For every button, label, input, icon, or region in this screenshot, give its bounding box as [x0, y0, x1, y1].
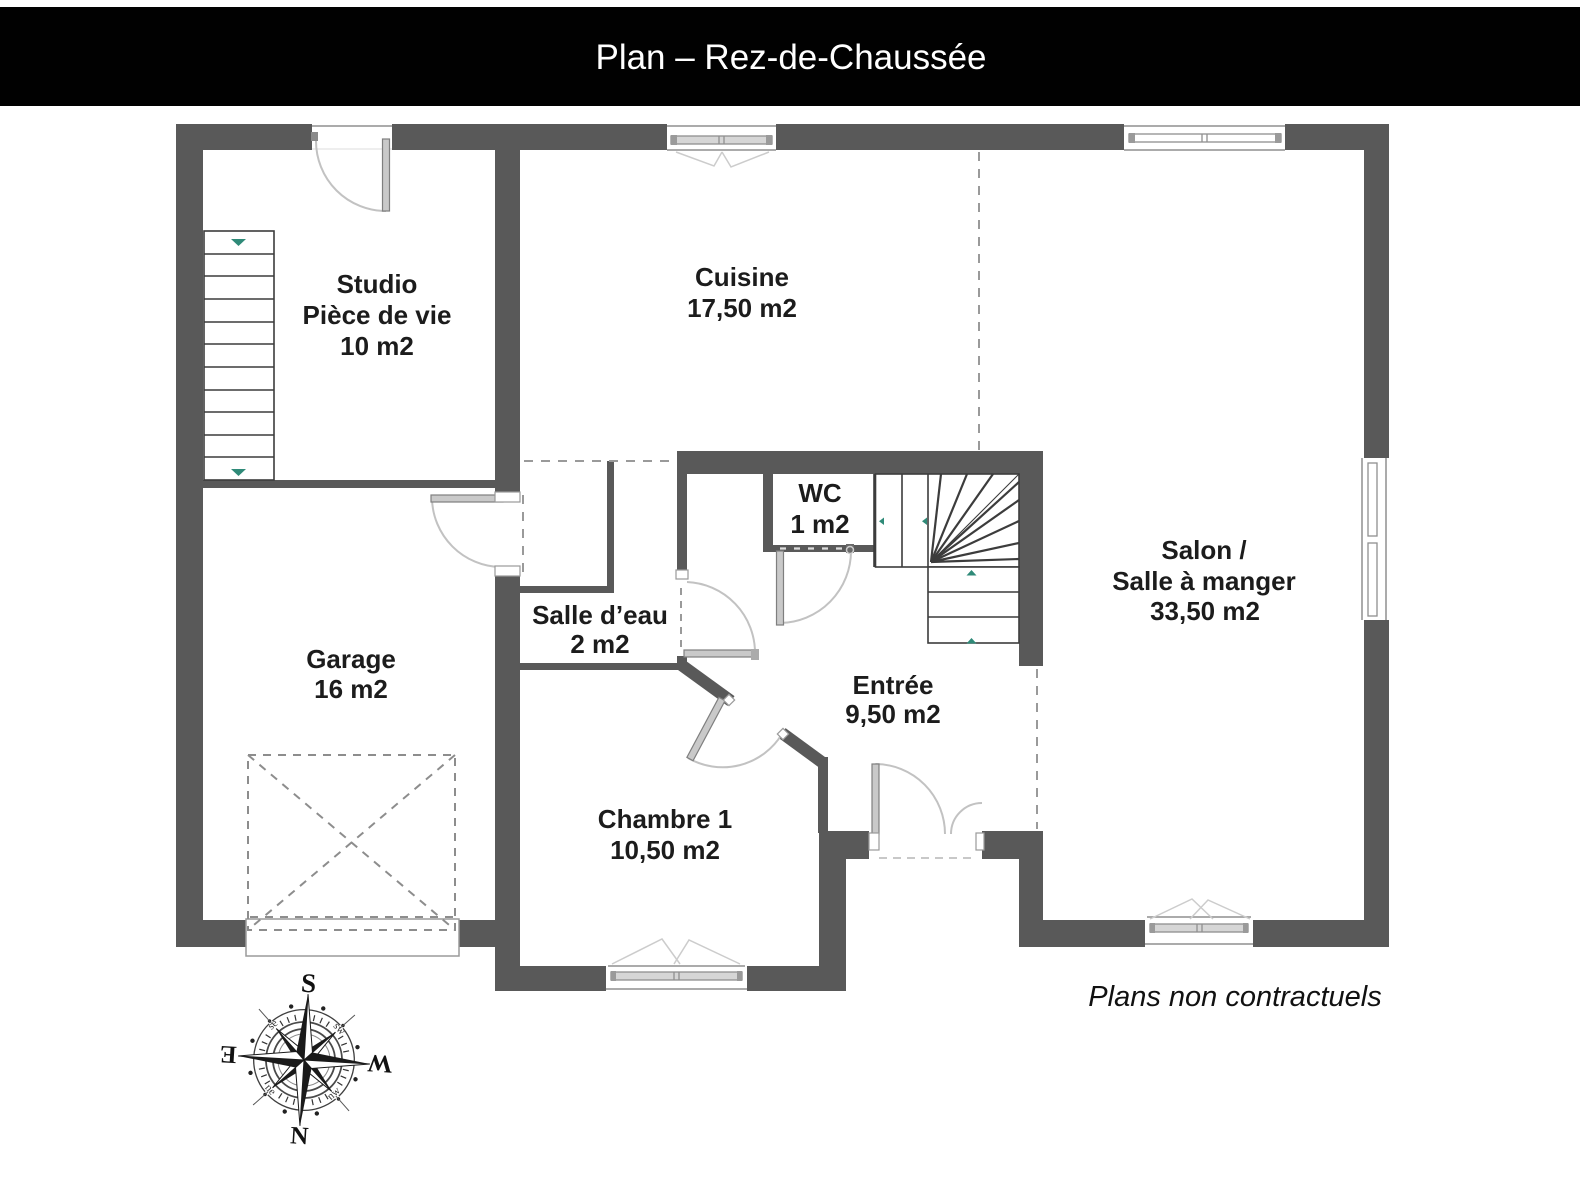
- svg-text:16 m2: 16 m2: [314, 674, 388, 704]
- svg-text:S: S: [300, 968, 317, 999]
- svg-text:Plan – Rez-de-Chaussée: Plan – Rez-de-Chaussée: [595, 38, 986, 77]
- svg-text:17,50 m2: 17,50 m2: [687, 293, 797, 323]
- svg-text:Salon /: Salon /: [1161, 535, 1246, 565]
- svg-text:Studio: Studio: [337, 269, 418, 299]
- svg-text:Entrée: Entrée: [853, 670, 934, 700]
- svg-text:1 m2: 1 m2: [790, 509, 849, 539]
- svg-text:Plans non contractuels: Plans non contractuels: [1088, 981, 1381, 1013]
- svg-text:Cuisine: Cuisine: [695, 262, 789, 292]
- svg-text:10,50 m2: 10,50 m2: [610, 835, 720, 865]
- svg-text:W: W: [367, 1049, 394, 1077]
- svg-text:Salle à manger: Salle à manger: [1112, 566, 1296, 596]
- svg-text:Pièce de vie: Pièce de vie: [303, 300, 452, 330]
- svg-text:Chambre 1: Chambre 1: [598, 804, 732, 834]
- svg-text:Salle d’eau: Salle d’eau: [532, 600, 668, 630]
- svg-text:Garage: Garage: [306, 644, 396, 674]
- svg-text:N: N: [289, 1122, 309, 1150]
- svg-text:10 m2: 10 m2: [340, 331, 414, 361]
- svg-text:2 m2: 2 m2: [570, 629, 629, 659]
- svg-text:E: E: [219, 1040, 237, 1068]
- svg-text:33,50 m2: 33,50 m2: [1150, 596, 1260, 626]
- svg-text:9,50 m2: 9,50 m2: [845, 699, 940, 729]
- svg-text:WC: WC: [798, 478, 842, 508]
